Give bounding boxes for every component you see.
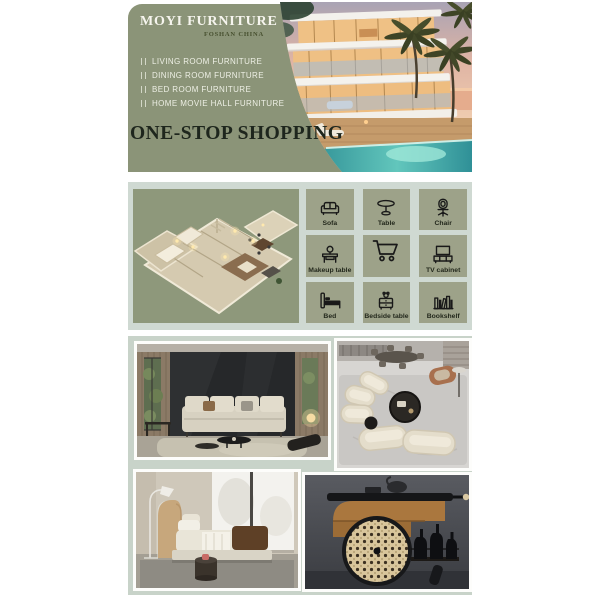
makeup-table-icon: [317, 242, 343, 267]
menu-item-label: BED ROOM FURNITURE: [152, 85, 251, 94]
category-table: Table: [363, 189, 411, 230]
double-bar-icon: [141, 100, 146, 107]
shopping-cart-icon: [370, 235, 402, 265]
category-label: Bookshelf: [427, 313, 460, 321]
furniture-promo-banner: MOYI FURNITURE FOSHAN CHINA LIVING ROOM …: [0, 0, 600, 600]
bedside-table-icon: [373, 288, 399, 313]
category-tv-cabinet: TV cabinet: [419, 235, 467, 277]
floor-plan-image: [133, 189, 299, 323]
menu-item-label: LIVING ROOM FURNITURE: [152, 57, 262, 66]
category-label: Bedside table: [364, 313, 408, 321]
headline: ONE-STOP SHOPPING: [130, 123, 343, 145]
double-bar-icon: [141, 72, 146, 79]
gallery-photo-sofa-set: [334, 338, 472, 471]
sofa-set-top-view-photo: [337, 341, 469, 468]
bed-icon: [317, 288, 343, 313]
menu-item: LIVING ROOM FURNITURE: [141, 54, 284, 68]
category-bookshelf: Bookshelf: [419, 282, 467, 323]
brand-title: MOYI FURNITURE: [140, 14, 278, 30]
category-icon-grid: Sofa Table Chair: [306, 189, 467, 323]
living-room-photo: [137, 344, 328, 457]
bookshelf-icon: [430, 288, 456, 313]
category-chair: Chair: [419, 189, 467, 230]
bedroom-photo: [136, 472, 298, 588]
desk-chair-icon: [430, 195, 456, 220]
menu-item-label: HOME MOVIE HALL FURNITURE: [152, 99, 284, 108]
category-section: Sofa Table Chair: [128, 182, 472, 330]
menu-item-label: DINING ROOM FURNITURE: [152, 71, 264, 80]
category-bed: Bed: [306, 282, 354, 323]
category-sofa: Sofa: [306, 189, 354, 230]
category-menu: LIVING ROOM FURNITURE DINING ROOM FURNIT…: [141, 54, 284, 110]
category-label: Bed: [323, 313, 336, 321]
menu-item: BED ROOM FURNITURE: [141, 82, 284, 96]
double-bar-icon: [141, 58, 146, 65]
sofa-icon: [317, 195, 343, 220]
menu-item: DINING ROOM FURNITURE: [141, 68, 284, 82]
tv-cabinet-icon: [430, 242, 456, 267]
category-label: Chair: [434, 220, 451, 228]
bar-cart-photo: [305, 475, 469, 589]
category-makeup-table: Makeup table: [306, 235, 354, 277]
category-label: Makeup table: [308, 267, 351, 275]
hero-banner: MOYI FURNITURE FOSHAN CHINA LIVING ROOM …: [128, 2, 472, 172]
category-label: Sofa: [322, 220, 337, 228]
category-cart: [363, 235, 411, 277]
category-bedside-table: Bedside table: [363, 282, 411, 323]
category-label: TV cabinet: [426, 267, 460, 275]
menu-item: HOME MOVIE HALL FURNITURE: [141, 96, 284, 110]
gallery-photo-bedroom: [133, 469, 301, 591]
villa-photo: [266, 2, 472, 172]
floor-plan-panel: [133, 189, 299, 323]
gallery-section: [128, 336, 472, 595]
gallery-photo-bar-cart: [302, 472, 472, 592]
round-table-icon: [373, 195, 399, 220]
brand-location: FOSHAN CHINA: [140, 31, 264, 38]
gallery-photo-living-room: [134, 341, 331, 460]
double-bar-icon: [141, 86, 146, 93]
category-label: Table: [378, 220, 395, 228]
